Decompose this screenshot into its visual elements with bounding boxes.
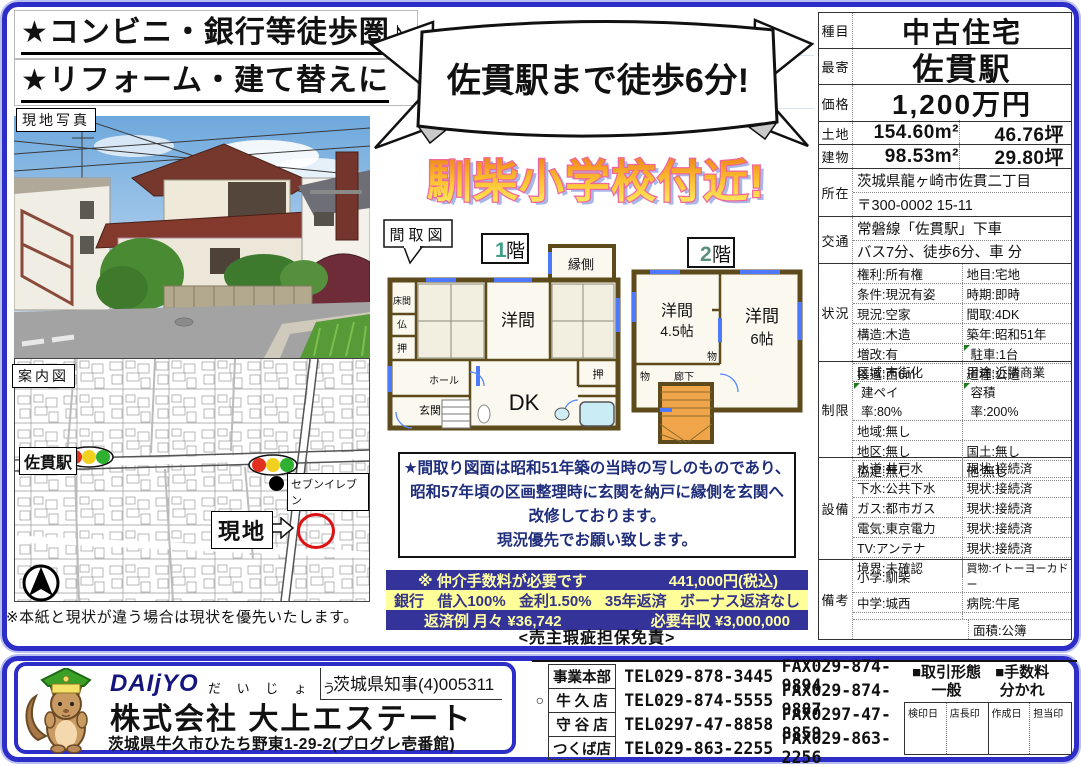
- floorplan: 間取図 1 階: [382, 214, 814, 448]
- ribbon-text: 佐貫駅まで徒歩6分!: [446, 62, 749, 100]
- fee-note: ※ 仲介手数料が必要です: [418, 570, 587, 591]
- spec-label-station: 最寄: [819, 49, 853, 84]
- building-sqm: 98.53m²: [853, 146, 959, 168]
- room-yoma45: 洋間: [661, 302, 693, 320]
- spec-value-station: 佐貫駅: [853, 49, 1071, 84]
- access-line2: バス7分、徒歩6分、車 分: [853, 240, 1071, 264]
- room-tokonoma: 床間: [393, 295, 411, 306]
- headline-text: 馴柴小学校付近!: [427, 156, 765, 207]
- spec-row-location: 所在 茨城県龍ヶ崎市佐貫二丁目 〒300-0002 15-11: [819, 168, 1071, 216]
- note-line: 現況優先でお願い致します。: [400, 529, 794, 553]
- map-station-label: 佐貫駅: [19, 447, 77, 475]
- land-sqm: 154.60m²: [853, 122, 959, 144]
- room-oshi-left: 押: [397, 342, 407, 355]
- room-yoma6: 洋間: [745, 307, 779, 326]
- spec-label-status: 状況: [819, 264, 853, 361]
- stamp-cell: 検印日: [905, 703, 946, 754]
- room-mono-left: 物: [640, 370, 650, 383]
- location-line2: 〒300-0002 15-11: [853, 192, 1071, 216]
- room-dk: DK: [509, 390, 540, 415]
- company-box: DAIjYO だ い じ ょ う 茨城県知事(4)005311 株式会社 大上エ…: [14, 662, 516, 754]
- guide-map: 佐貫駅 セブンイレブン 現地: [14, 358, 370, 602]
- spec-value-type: 中古住宅: [853, 13, 1071, 48]
- seller-warranty-note: <売主瑕疵担保免責>: [386, 624, 808, 648]
- spec-label-building: 建物: [819, 145, 853, 168]
- headline-wordart: 馴柴小学校付近! 馴柴小学校付近!: [380, 150, 812, 214]
- map-store-label: セブンイレブン: [287, 473, 369, 511]
- spec-section-utilities: 設備 水道:井戸水現状:接続済 下水:公共下水現状:接続済 ガス:都市ガス現状:…: [819, 457, 1071, 559]
- spec-label-type: 種目: [819, 13, 853, 48]
- area-basis: 面積:公簿: [968, 620, 1071, 639]
- site-photo-label: 現地写真: [16, 108, 96, 132]
- spec-section-status: 状況 権利:所有権地目:宅地 条件:現況有姿時期:即時 現況:空家間取:4DK …: [819, 263, 1071, 361]
- room-genkan: 玄関: [419, 403, 441, 417]
- spec-label-price: 価格: [819, 85, 853, 121]
- spec-row-building: 建物 98.53m² 29.80坪: [819, 144, 1071, 168]
- ribbon-banner: 佐貫駅まで徒歩6分!: [366, 6, 818, 156]
- spec-label-land: 土地: [819, 122, 853, 144]
- guide-map-label: 案内図: [12, 364, 75, 388]
- location-line1: 茨城県龍ヶ崎市佐貫二丁目: [853, 169, 1071, 192]
- banner-convenience-text: ★コンビニ・銀行等徒歩圏♪: [21, 14, 406, 55]
- spec-section-remarks: 備考 小学:馴柴買物:イトーヨーカドー 中学:城西病院:牛尾 面積:公簿: [819, 559, 1071, 639]
- loan-bonus: ボーナス返済なし: [680, 590, 800, 611]
- floor1-plan: 縁側 床間 仏 押 洋間 押 ホール 玄関 DK 押: [390, 246, 623, 428]
- room-mono-right: 物: [707, 350, 717, 363]
- spec-row-access: 交通 常磐線「佐貫駅」下車 バス7分、徒歩6分、車 分: [819, 216, 1071, 263]
- site-photo: [14, 116, 370, 358]
- store-dot-icon: [269, 476, 284, 491]
- property-spec-table: 種目 中古住宅 最寄 佐貫駅 価格 1,200万円 土地 154.60m² 46…: [818, 12, 1072, 640]
- svg-text:階: 階: [712, 244, 731, 266]
- banner-reform-text: ★リフォーム・建て替えに: [21, 62, 389, 103]
- room-yoma6-size: 6帖: [750, 331, 773, 348]
- note-line: 昭和57年頃の区画整理時に玄関を納戸に縁側を玄関へ: [400, 481, 794, 505]
- stamp-table: 検印日 店長印 作成日 担当印: [904, 702, 1072, 755]
- floor2-plan: 洋間 4.5帖 洋間 6帖 物 物 廊下: [634, 272, 800, 442]
- site-circle-marker: [297, 513, 335, 549]
- mascot-squirrel-icon: [22, 668, 104, 754]
- spec-row-station: 最寄 佐貫駅: [819, 48, 1071, 84]
- room-hall: ホール: [429, 375, 459, 387]
- floor2-title: 2 階: [688, 238, 734, 267]
- spec-row-land: 土地 154.60m² 46.76坪: [819, 121, 1071, 144]
- loan-bank: 銀行: [394, 590, 424, 611]
- site-photo-illustration: [14, 116, 370, 358]
- stamp-cell: 担当印: [1029, 703, 1071, 754]
- floorplan-label: 間取図: [389, 227, 446, 244]
- spec-label-remarks: 備考: [819, 560, 853, 639]
- loan-fee-band: ※ 仲介手数料が必要です 441,000円(税込): [386, 570, 808, 590]
- spec-label-location: 所在: [819, 169, 853, 216]
- banner-reform: ★リフォーム・建て替えに: [14, 59, 418, 106]
- deal-type-value: 一般: [912, 682, 981, 700]
- loan-ratio: 借入100%: [437, 590, 505, 611]
- stamp-cell: 作成日: [988, 703, 1030, 754]
- deal-info: ■取引形態 一般 ■手数料 分かれ: [912, 664, 1049, 700]
- room-yoma45-size: 4.5帖: [660, 323, 693, 339]
- fee-amount: 441,000円(税込): [669, 570, 778, 591]
- note-line: 改修しております。: [400, 505, 794, 529]
- spec-label-access: 交通: [819, 217, 853, 263]
- fee-label: ■手数料: [995, 664, 1049, 682]
- office-row: つくば店 TEL029-863-2255 FAX029-863-2256: [532, 736, 912, 760]
- banner-convenience: ★コンビニ・銀行等徒歩圏♪: [14, 10, 418, 59]
- spec-row-type: 種目 中古住宅: [819, 13, 1071, 48]
- compass-north-icon: [21, 563, 61, 603]
- access-line1: 常磐線「佐貫駅」下車: [853, 217, 1071, 240]
- spec-label-restrictions: 制限: [819, 362, 853, 457]
- room-butsu: 仏: [397, 319, 407, 331]
- page: { "colors": { "frame_blue": "#2d2dc8", "…: [0, 0, 1081, 765]
- loan-years: 35年返済: [605, 590, 667, 611]
- svg-text:2: 2: [700, 243, 712, 266]
- fee-value: 分かれ: [995, 682, 1049, 700]
- map-disclaimer: ※本紙と現状が違う場合は現状を優先いたします。: [6, 606, 376, 627]
- map-site-label: 現地: [211, 511, 273, 549]
- room-rouka: 廊下: [674, 370, 694, 383]
- floorplan-note: ★間取り図面は昭和51年築の当時の写しのものであり、 昭和57年頃の区画整理時に…: [398, 452, 796, 558]
- deal-type-label: ■取引形態: [912, 664, 981, 682]
- floor1-title: 1 階: [482, 234, 528, 263]
- spec-value-price: 1,200万円: [853, 85, 1071, 121]
- building-tsubo: 29.80坪: [959, 143, 1068, 170]
- room-engawa: 縁側: [568, 257, 594, 272]
- spec-section-restrictions: 制限 区域:市街化用途:近隣商業 建ペイ率:80%容積率:200% 地域:無し …: [819, 361, 1071, 457]
- loan-rate: 金利1.50%: [519, 590, 592, 611]
- svg-text:階: 階: [506, 240, 525, 262]
- note-line: ★間取り図面は昭和51年築の当時の写しのものであり、: [400, 457, 794, 481]
- room-oshi-bottom: 押: [593, 367, 604, 381]
- spec-row-price: 価格 1,200万円: [819, 84, 1071, 121]
- room-yoma: 洋間: [501, 311, 535, 330]
- stamp-cell: 店長印: [946, 703, 988, 754]
- spec-label-utilities: 設備: [819, 458, 853, 559]
- company-address: 茨城県牛久市ひたち野東1-29-2(プログレ壱番館): [108, 732, 455, 754]
- loan-terms-band: 銀行 借入100% 金利1.50% 35年返済 ボーナス返済なし: [386, 590, 808, 610]
